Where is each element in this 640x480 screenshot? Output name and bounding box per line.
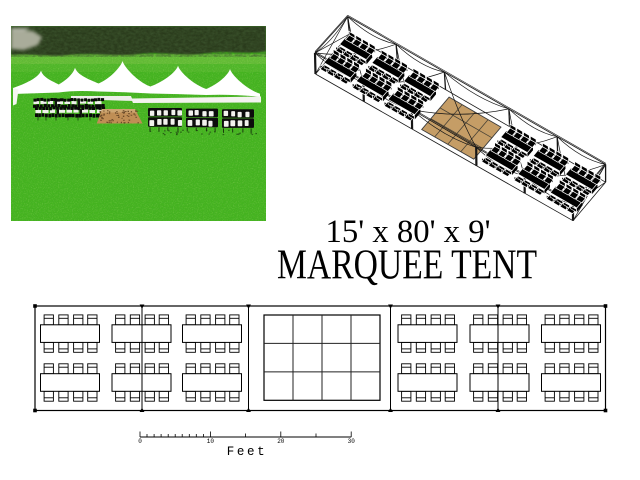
svg-text:30: 30 — [348, 438, 356, 445]
svg-text:0: 0 — [138, 438, 142, 445]
svg-text:20: 20 — [277, 438, 285, 445]
svg-text:10: 10 — [207, 438, 215, 445]
svg-text:MARQUEE TENT: MARQUEE TENT — [277, 243, 537, 289]
svg-text:Feet: Feet — [227, 445, 267, 459]
